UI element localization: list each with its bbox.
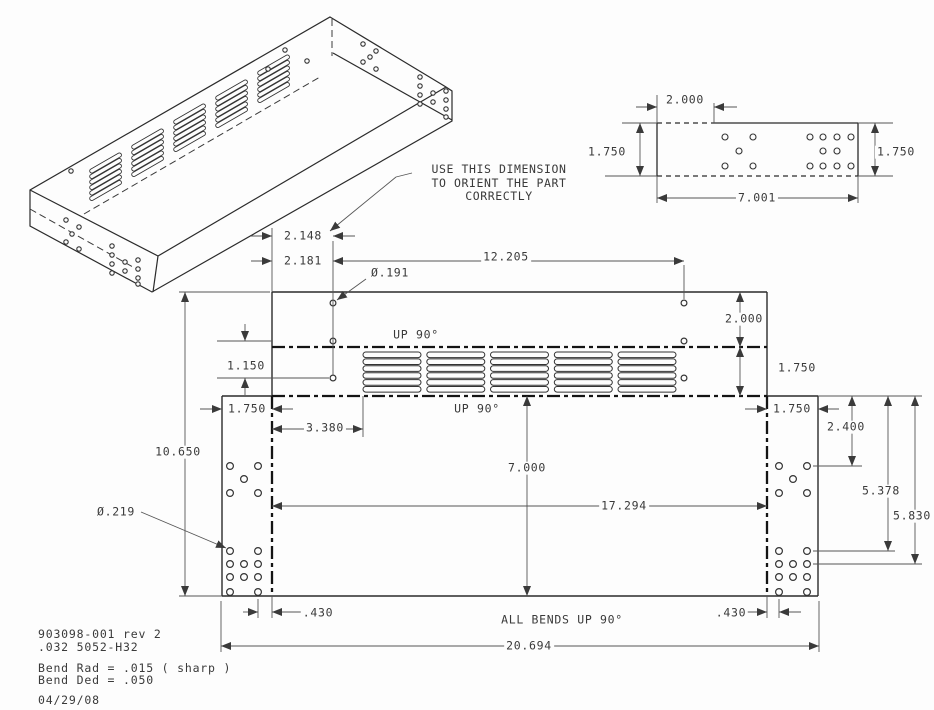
drawing-date: 04/29/08 bbox=[38, 694, 100, 707]
orientation-note-line3: CORRECTLY bbox=[404, 190, 594, 204]
dimension-label-layer: 2.1482.18112.205Ø.1912.000UP 90°1.1501.7… bbox=[0, 0, 934, 710]
dia-0-219: Ø.219 bbox=[95, 506, 137, 519]
orientation-note-line1: USE THIS DIMENSION bbox=[404, 163, 594, 177]
dim-12-205: 12.205 bbox=[481, 251, 531, 264]
dim-7-000: 7.000 bbox=[506, 462, 548, 475]
dim-2-400: 2.400 bbox=[825, 421, 867, 434]
dim-5-378: 5.378 bbox=[860, 485, 902, 498]
dim-17-294: 17.294 bbox=[599, 500, 649, 513]
dia-0-191: Ø.191 bbox=[369, 267, 411, 280]
dim-7-001: 7.001 bbox=[736, 192, 778, 205]
dim-1-750-right-tab: 1.750 bbox=[771, 403, 813, 416]
dim-1-750-left-tab: 1.750 bbox=[226, 403, 268, 416]
dim-1-750-detail-right: 1.750 bbox=[875, 146, 917, 159]
dim-2-181: 2.181 bbox=[282, 255, 324, 268]
dim-1-750-detail-left: 1.750 bbox=[586, 146, 628, 159]
dim-0-430-left: .430 bbox=[301, 607, 335, 620]
bend-note-up90-bottom: UP 90° bbox=[452, 403, 502, 416]
dim-1-150: 1.150 bbox=[225, 360, 267, 373]
dim-5-830: 5.830 bbox=[891, 510, 933, 523]
dim-1-750-vent: 1.750 bbox=[776, 362, 818, 375]
orientation-note: USE THIS DIMENSION TO ORIENT THE PART CO… bbox=[404, 163, 594, 204]
dim-3-380: 3.380 bbox=[304, 422, 346, 435]
dim-10-650: 10.650 bbox=[153, 446, 203, 459]
bend-deduction-note: Bend Ded = .050 bbox=[38, 674, 154, 687]
dim-0-430-right: .430 bbox=[714, 607, 748, 620]
orientation-note-line2: TO ORIENT THE PART bbox=[404, 177, 594, 191]
dim-2-000-flat: 2.000 bbox=[723, 313, 765, 326]
dim-20-694: 20.694 bbox=[504, 640, 554, 653]
bend-note-up90-top: UP 90° bbox=[391, 329, 441, 342]
dim-2-148: 2.148 bbox=[282, 230, 324, 243]
material-spec: .032 5052-H32 bbox=[38, 641, 138, 654]
cad-drawing-sheet: 2.1482.18112.205Ø.1912.000UP 90°1.1501.7… bbox=[0, 0, 934, 710]
note-all-bends: ALL BENDS UP 90° bbox=[499, 614, 625, 627]
dim-2-000-detail: 2.000 bbox=[664, 94, 706, 107]
part-number: 903098-001 rev 2 bbox=[38, 628, 162, 641]
